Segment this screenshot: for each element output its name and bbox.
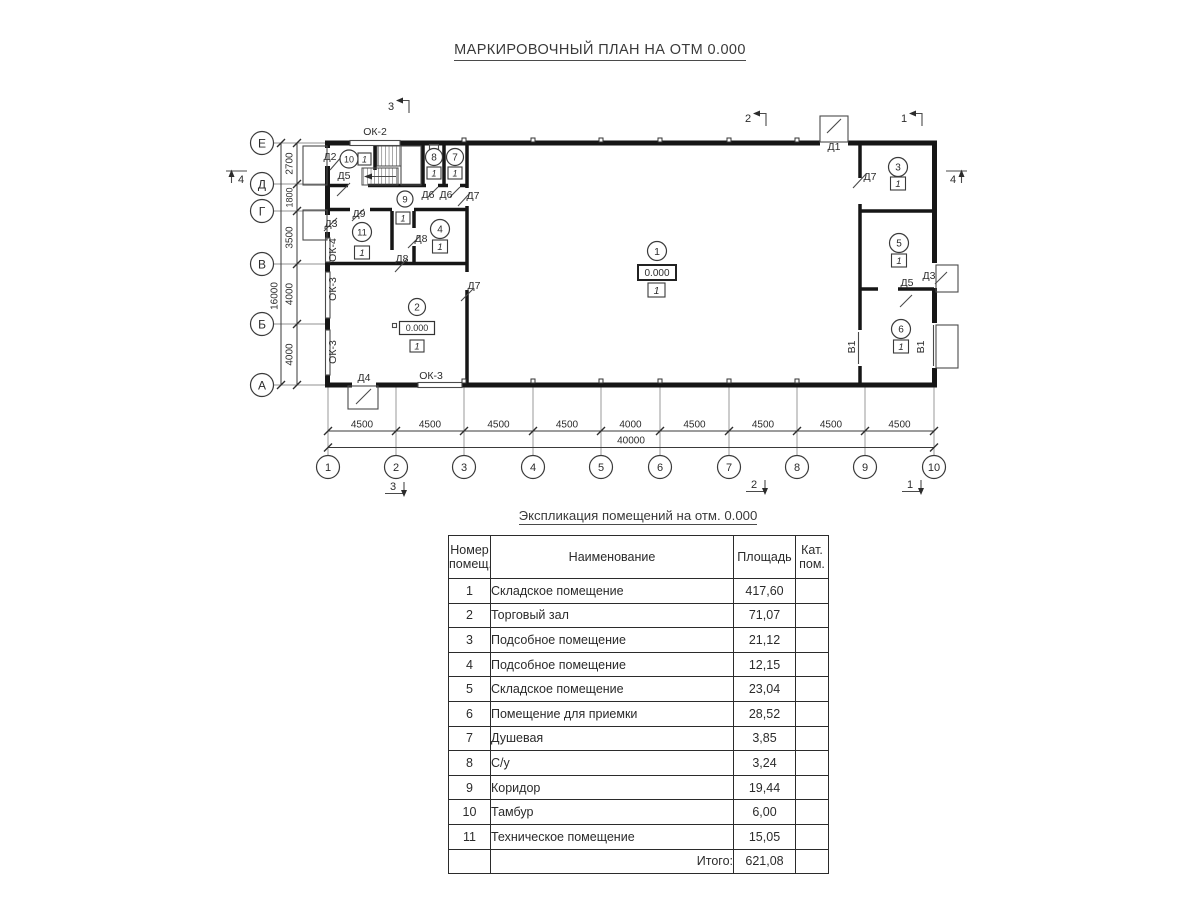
explication-table: Номер помещ. Наименование Площадь Кат. п… bbox=[448, 535, 829, 874]
category-badge: 1 bbox=[895, 179, 900, 190]
room-category-cell bbox=[796, 701, 829, 726]
label-ok4: ОК-4 bbox=[327, 238, 339, 262]
room-name-cell: Техническое помещение bbox=[491, 824, 734, 849]
axis-label: Д bbox=[258, 177, 266, 191]
room-name-cell: Торговый зал bbox=[491, 603, 734, 628]
room-name-cell: Тамбур bbox=[491, 800, 734, 825]
door-leaf-lines bbox=[324, 119, 947, 404]
room-area-cell: 23,04 bbox=[734, 677, 796, 702]
category-badge: 1 bbox=[654, 285, 660, 297]
category-badge: 1 bbox=[452, 168, 457, 178]
explication-footer: Итого: 621,08 bbox=[449, 849, 829, 874]
table-row: 11 Техническое помещение 15,05 bbox=[449, 824, 829, 849]
room-name-cell: С/у bbox=[491, 751, 734, 776]
dim-label: 3500 bbox=[285, 226, 296, 249]
category-badge: 1 bbox=[359, 248, 364, 259]
total-row: Итого: 621,08 bbox=[449, 849, 829, 874]
table-row: 10 Тамбур 6,00 bbox=[449, 800, 829, 825]
col-header-area: Площадь bbox=[734, 536, 796, 579]
floor-plan-drawing: 4500 4500 4500 4500 4000 4500 4500 4500 … bbox=[0, 0, 1200, 510]
table-row: 9 Коридор 19,44 bbox=[449, 775, 829, 800]
section-mark: 2 bbox=[745, 113, 751, 125]
room-area-cell: 15,05 bbox=[734, 824, 796, 849]
table-row: 1 Складское помещение 417,60 bbox=[449, 579, 829, 604]
table-row: 6 Помещение для приемки 28,52 bbox=[449, 701, 829, 726]
category-badge: 1 bbox=[362, 154, 367, 164]
category-badge: 1 bbox=[414, 342, 419, 353]
total-label: Итого: bbox=[491, 849, 734, 874]
room-category-cell bbox=[796, 726, 829, 751]
total-empty-cell bbox=[449, 849, 491, 874]
elevation-value: 0.000 bbox=[406, 323, 429, 333]
label-v1: В1 bbox=[846, 340, 858, 353]
label-ok3: ОК-3 bbox=[327, 340, 339, 364]
elevation-value: 0.000 bbox=[644, 268, 669, 279]
room-category-cell bbox=[796, 579, 829, 604]
explication-header: Номер помещ. Наименование Площадь Кат. п… bbox=[449, 536, 829, 579]
dim-label: 4500 bbox=[556, 420, 579, 431]
label-d2: Д2 bbox=[324, 151, 337, 163]
axis-label: 10 bbox=[928, 462, 940, 474]
bottom-dimensions: 4500 4500 4500 4500 4000 4500 4500 4500 … bbox=[324, 420, 938, 452]
dim-label: 2700 bbox=[285, 152, 296, 175]
dim-label: 4500 bbox=[351, 420, 374, 431]
room-name-cell: Складское помещение bbox=[491, 677, 734, 702]
room-category-cell bbox=[796, 603, 829, 628]
room-area-cell: 28,52 bbox=[734, 701, 796, 726]
room-number-cell: 6 bbox=[449, 701, 491, 726]
label-d7: Д7 bbox=[468, 280, 481, 292]
elevation-marks: 0.000 0.000 bbox=[393, 265, 677, 335]
section-mark: 4 bbox=[950, 174, 956, 186]
axis-label: 9 bbox=[862, 462, 868, 474]
section-mark: 1 bbox=[901, 113, 907, 125]
room-number-cell: 2 bbox=[449, 603, 491, 628]
dim-label: 4500 bbox=[752, 420, 775, 431]
dim-label: 4500 bbox=[820, 420, 843, 431]
room-name-cell: Помещение для приемки bbox=[491, 701, 734, 726]
explication-body: 1 Складское помещение 417,60 2 Торговый … bbox=[449, 579, 829, 850]
room-number: 1 bbox=[654, 246, 660, 258]
room-area-cell: 21,12 bbox=[734, 628, 796, 653]
category-badge: 1 bbox=[437, 242, 442, 253]
label-d7: Д7 bbox=[467, 190, 480, 202]
room-name-cell: Складское помещение bbox=[491, 579, 734, 604]
section-mark: 2 bbox=[751, 479, 757, 491]
axis-label: 4 bbox=[530, 462, 536, 474]
dim-label: 4000 bbox=[285, 343, 296, 366]
total-category-cell bbox=[796, 849, 829, 874]
label-d1: Д1 bbox=[828, 141, 841, 153]
label-d3: Д3 bbox=[325, 218, 338, 230]
grid-lines bbox=[274, 143, 935, 455]
room-number-cell: 11 bbox=[449, 824, 491, 849]
room-number: 8 bbox=[431, 153, 437, 164]
label-d4: Д4 bbox=[358, 372, 371, 384]
category-badge: 1 bbox=[431, 168, 436, 178]
room-category-cell bbox=[796, 800, 829, 825]
category-badge: 1 bbox=[898, 342, 903, 353]
dim-label: 4500 bbox=[487, 420, 510, 431]
window-ok2 bbox=[350, 141, 400, 146]
label-d8: Д8 bbox=[396, 253, 409, 265]
room-category-cell bbox=[796, 775, 829, 800]
total-value: 621,08 bbox=[734, 849, 796, 874]
category-badges: 1 1 1 1 1 1 1 1 1 1 1 bbox=[355, 153, 909, 353]
table-row: 2 Торговый зал 71,07 bbox=[449, 603, 829, 628]
dim-label: 1800 bbox=[285, 187, 295, 207]
table-row: 3 Подсобное помещение 21,12 bbox=[449, 628, 829, 653]
room-number: 9 bbox=[402, 194, 407, 205]
dim-label: 4000 bbox=[285, 282, 296, 305]
wall-axis-markers bbox=[462, 138, 799, 383]
label-ok3: ОК-3 bbox=[327, 277, 339, 301]
room-number-cell: 1 bbox=[449, 579, 491, 604]
room-number-cell: 10 bbox=[449, 800, 491, 825]
room-name-cell: Душевая bbox=[491, 726, 734, 751]
label-d6: Д6 bbox=[422, 189, 435, 201]
axis-label: 5 bbox=[598, 462, 604, 474]
room-area-cell: 3,85 bbox=[734, 726, 796, 751]
room-category-cell bbox=[796, 824, 829, 849]
axis-label: А bbox=[258, 378, 266, 392]
table-row: 5 Складское помещение 23,04 bbox=[449, 677, 829, 702]
room-number: 5 bbox=[896, 239, 902, 250]
room-name-cell: Подсобное помещение bbox=[491, 652, 734, 677]
axis-label: В bbox=[258, 257, 266, 271]
room-number-cell: 7 bbox=[449, 726, 491, 751]
col-header-category: Кат. пом. bbox=[796, 536, 829, 579]
axis-label: 1 bbox=[325, 462, 331, 474]
section-mark: 4 bbox=[238, 174, 244, 186]
room-number-cell: 4 bbox=[449, 652, 491, 677]
table-row: 7 Душевая 3,85 bbox=[449, 726, 829, 751]
label-d5: Д5 bbox=[901, 277, 914, 289]
table-row: 8 С/у 3,24 bbox=[449, 751, 829, 776]
room-number: 10 bbox=[344, 154, 354, 164]
column-axis-bubbles: 1 2 3 4 5 6 7 8 9 10 bbox=[317, 456, 946, 479]
axis-label: 8 bbox=[794, 462, 800, 474]
window-ok3 bbox=[418, 383, 462, 388]
axis-label: 6 bbox=[657, 462, 663, 474]
room-number: 11 bbox=[357, 228, 367, 239]
room-category-cell bbox=[796, 628, 829, 653]
col-header-name: Наименование bbox=[491, 536, 734, 579]
section-mark: 1 bbox=[907, 479, 913, 491]
room-number: 3 bbox=[895, 163, 901, 174]
table-row: 4 Подсобное помещение 12,15 bbox=[449, 652, 829, 677]
label-d6: Д6 bbox=[440, 189, 453, 201]
row-axis-bubbles: Е Д Г В Б А bbox=[251, 132, 274, 397]
room-number-cell: 5 bbox=[449, 677, 491, 702]
label-d3: Д3 bbox=[923, 270, 936, 282]
room-number: 7 bbox=[452, 153, 458, 164]
room-number-cell: 8 bbox=[449, 751, 491, 776]
category-badge: 1 bbox=[896, 256, 901, 267]
axis-label: 3 bbox=[461, 462, 467, 474]
label-v1: В1 bbox=[915, 340, 927, 353]
room-name-cell: Подсобное помещение bbox=[491, 628, 734, 653]
room-name-cell: Коридор bbox=[491, 775, 734, 800]
label-ok2: ОК-2 bbox=[363, 126, 387, 138]
axis-label: Е bbox=[258, 136, 266, 150]
room-category-cell bbox=[796, 751, 829, 776]
room-category-cell bbox=[796, 652, 829, 677]
explication-title: Экспликация помещений на отм. 0.000 bbox=[448, 508, 828, 523]
room-number-cell: 9 bbox=[449, 775, 491, 800]
section-mark: 3 bbox=[390, 481, 396, 493]
label-ok3: ОК-3 bbox=[419, 370, 443, 382]
room-area-cell: 71,07 bbox=[734, 603, 796, 628]
room-number: 6 bbox=[898, 325, 904, 336]
axis-label: Б bbox=[258, 317, 266, 331]
dim-label: 4500 bbox=[419, 420, 442, 431]
room-area-cell: 19,44 bbox=[734, 775, 796, 800]
dim-label: 4500 bbox=[683, 420, 706, 431]
dim-label: 4000 bbox=[619, 420, 642, 431]
room-category-cell bbox=[796, 677, 829, 702]
room-number: 2 bbox=[414, 303, 420, 314]
room-number: 4 bbox=[437, 225, 443, 236]
room-area-cell: 417,60 bbox=[734, 579, 796, 604]
room-area-cell: 3,24 bbox=[734, 751, 796, 776]
dim-total-label: 16000 bbox=[270, 282, 281, 310]
dim-total-label: 40000 bbox=[617, 436, 645, 447]
col-header-number: Номер помещ. bbox=[449, 536, 491, 579]
room-area-cell: 6,00 bbox=[734, 800, 796, 825]
room-number-cell: 3 bbox=[449, 628, 491, 653]
axis-label: 7 bbox=[726, 462, 732, 474]
label-d5: Д5 bbox=[338, 170, 351, 182]
label-d8: Д8 bbox=[415, 233, 428, 245]
room-area-cell: 12,15 bbox=[734, 652, 796, 677]
axis-label: 2 bbox=[393, 462, 399, 474]
label-d7: Д7 bbox=[864, 171, 877, 183]
axis-label: Г bbox=[259, 204, 266, 218]
section-mark: 3 bbox=[388, 101, 394, 113]
label-d9: Д9 bbox=[353, 208, 366, 220]
dim-label: 4500 bbox=[888, 420, 911, 431]
category-badge: 1 bbox=[400, 213, 405, 223]
